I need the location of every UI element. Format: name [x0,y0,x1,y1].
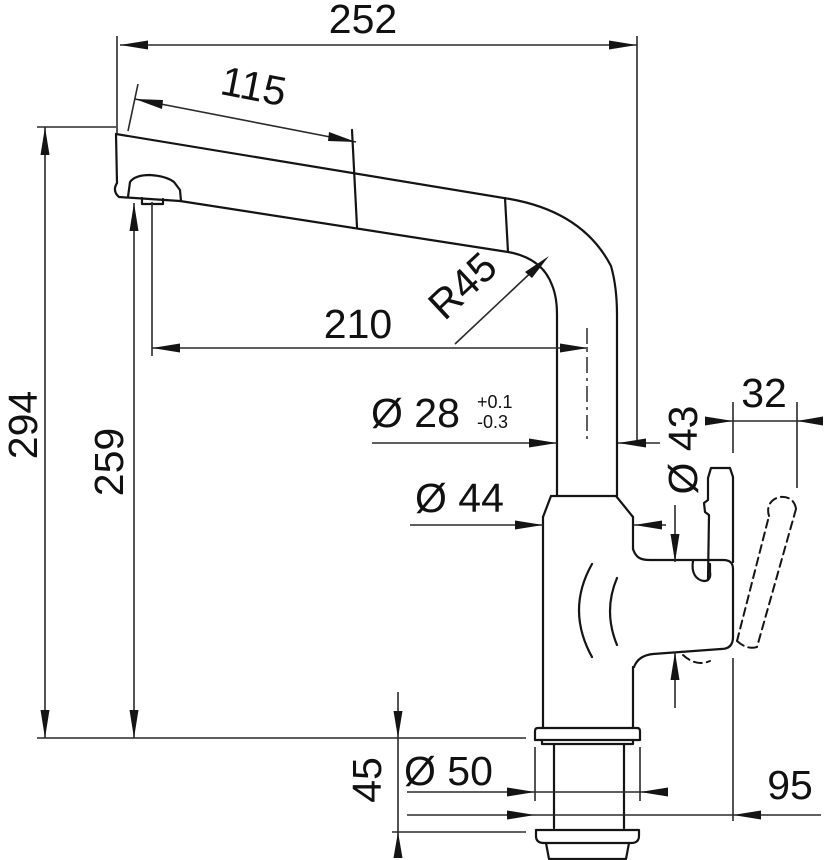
drawing-canvas: 252 115 294 259 210 R45 [0,0,824,860]
dim-d50-label: Ø 50 [404,748,493,794]
dim-d43-label: Ø 43 [660,406,706,495]
dim-d44-label: Ø 44 [415,475,504,521]
dim-294-label: 294 [0,391,46,459]
dim-259-label: 259 [86,428,132,496]
dim-252-label: 252 [329,0,397,42]
dim-95-label: 95 [767,762,813,808]
spray-head-end-cap [116,134,117,183]
dim-210-label: 210 [324,301,392,347]
dim-32-label: 32 [741,370,787,416]
faucet-technical-drawing: 252 115 294 259 210 R45 [0,0,824,860]
dim-d28-tolerance-plus: +0.1 [477,392,513,412]
dim-45-label: 45 [344,757,390,803]
dim-d28-label: Ø 28 [371,390,460,436]
dim-d28-tolerance-minus: -0.3 [477,412,508,432]
